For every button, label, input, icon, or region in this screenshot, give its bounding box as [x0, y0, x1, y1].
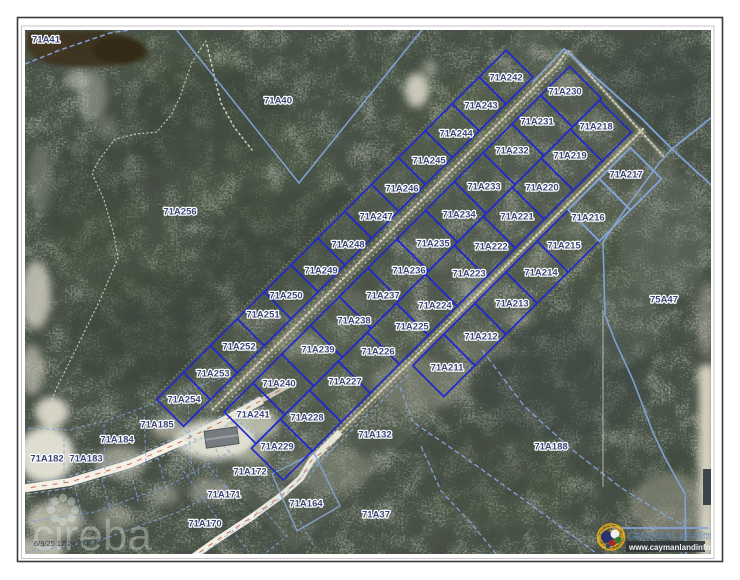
svg-text:71A245: 71A245 — [412, 156, 446, 167]
svg-text:71A224: 71A224 — [418, 301, 452, 312]
svg-text:71A225: 71A225 — [395, 322, 429, 333]
svg-text:CaymanLandInfo: CaymanLandInfo — [627, 530, 720, 542]
svg-text:71A244: 71A244 — [439, 129, 473, 140]
svg-text:71A132: 71A132 — [358, 430, 391, 441]
svg-text:71A254: 71A254 — [167, 395, 201, 406]
svg-text:71A184: 71A184 — [100, 435, 134, 446]
svg-text:71A236: 71A236 — [392, 266, 425, 277]
svg-text:71A228: 71A228 — [290, 413, 323, 424]
svg-text:71A212: 71A212 — [464, 332, 497, 343]
svg-text:71A246: 71A246 — [385, 184, 418, 195]
svg-text:71A238: 71A238 — [337, 316, 370, 327]
svg-text:71A227: 71A227 — [328, 377, 361, 388]
svg-text:71A213: 71A213 — [495, 299, 528, 310]
svg-text:71A251: 71A251 — [246, 310, 280, 321]
svg-text:71A247: 71A247 — [359, 212, 392, 223]
svg-text:71A250: 71A250 — [269, 291, 302, 302]
svg-text:71A223: 71A223 — [452, 269, 485, 280]
svg-text:71A220: 71A220 — [525, 183, 558, 194]
svg-text:71A242: 71A242 — [489, 73, 522, 84]
svg-text:71A249: 71A249 — [304, 266, 337, 277]
svg-text:71A41: 71A41 — [32, 35, 61, 46]
svg-text:71A221: 71A221 — [500, 212, 534, 223]
svg-text:71A237: 71A237 — [366, 291, 399, 302]
svg-text:71A182: 71A182 — [30, 454, 63, 465]
svg-text:71A172: 71A172 — [233, 467, 266, 478]
svg-text:71A219: 71A219 — [553, 151, 586, 162]
svg-text:71A218: 71A218 — [579, 122, 612, 133]
svg-text:75A47: 75A47 — [650, 295, 678, 306]
svg-text:71A240: 71A240 — [262, 379, 295, 390]
svg-text:71A226: 71A226 — [361, 347, 394, 358]
svg-text:71A214: 71A214 — [524, 268, 558, 279]
svg-text:71A231: 71A231 — [520, 117, 554, 128]
svg-text:71A234: 71A234 — [442, 210, 476, 221]
svg-text:71A230: 71A230 — [548, 87, 581, 98]
svg-text:71A252: 71A252 — [222, 342, 255, 353]
svg-text:71A256: 71A256 — [163, 207, 196, 218]
svg-text:71A222: 71A222 — [474, 242, 507, 253]
svg-text:cireba: cireba — [32, 511, 152, 560]
svg-text:71A185: 71A185 — [140, 420, 174, 431]
svg-text:71A239: 71A239 — [301, 345, 334, 356]
svg-text:71A164: 71A164 — [289, 499, 323, 510]
svg-text:71A170: 71A170 — [188, 519, 221, 530]
svg-text:71A40: 71A40 — [264, 96, 292, 107]
svg-text:www.caymanlandinfo.ky: www.caymanlandinfo.ky — [628, 543, 722, 552]
svg-text:71A241: 71A241 — [236, 410, 270, 421]
svg-text:71A215: 71A215 — [547, 241, 581, 252]
svg-text:71A229: 71A229 — [260, 442, 293, 453]
svg-text:71A171: 71A171 — [207, 490, 241, 501]
svg-text:71A233: 71A233 — [467, 182, 500, 193]
svg-text:71A248: 71A248 — [331, 240, 364, 251]
svg-text:71A216: 71A216 — [571, 213, 604, 224]
svg-text:71A183: 71A183 — [69, 454, 102, 465]
svg-text:71A211: 71A211 — [431, 363, 464, 374]
svg-text:71A235: 71A235 — [416, 239, 450, 250]
svg-text:71A188: 71A188 — [534, 442, 567, 453]
svg-text:71A217: 71A217 — [609, 170, 642, 181]
svg-text:71A253: 71A253 — [196, 369, 229, 380]
svg-text:6/9/25 12:24 PM: 6/9/25 12:24 PM — [34, 539, 89, 548]
svg-text:71A37: 71A37 — [362, 510, 390, 521]
svg-text:71A232: 71A232 — [495, 146, 528, 157]
svg-text:71A243: 71A243 — [464, 101, 497, 112]
